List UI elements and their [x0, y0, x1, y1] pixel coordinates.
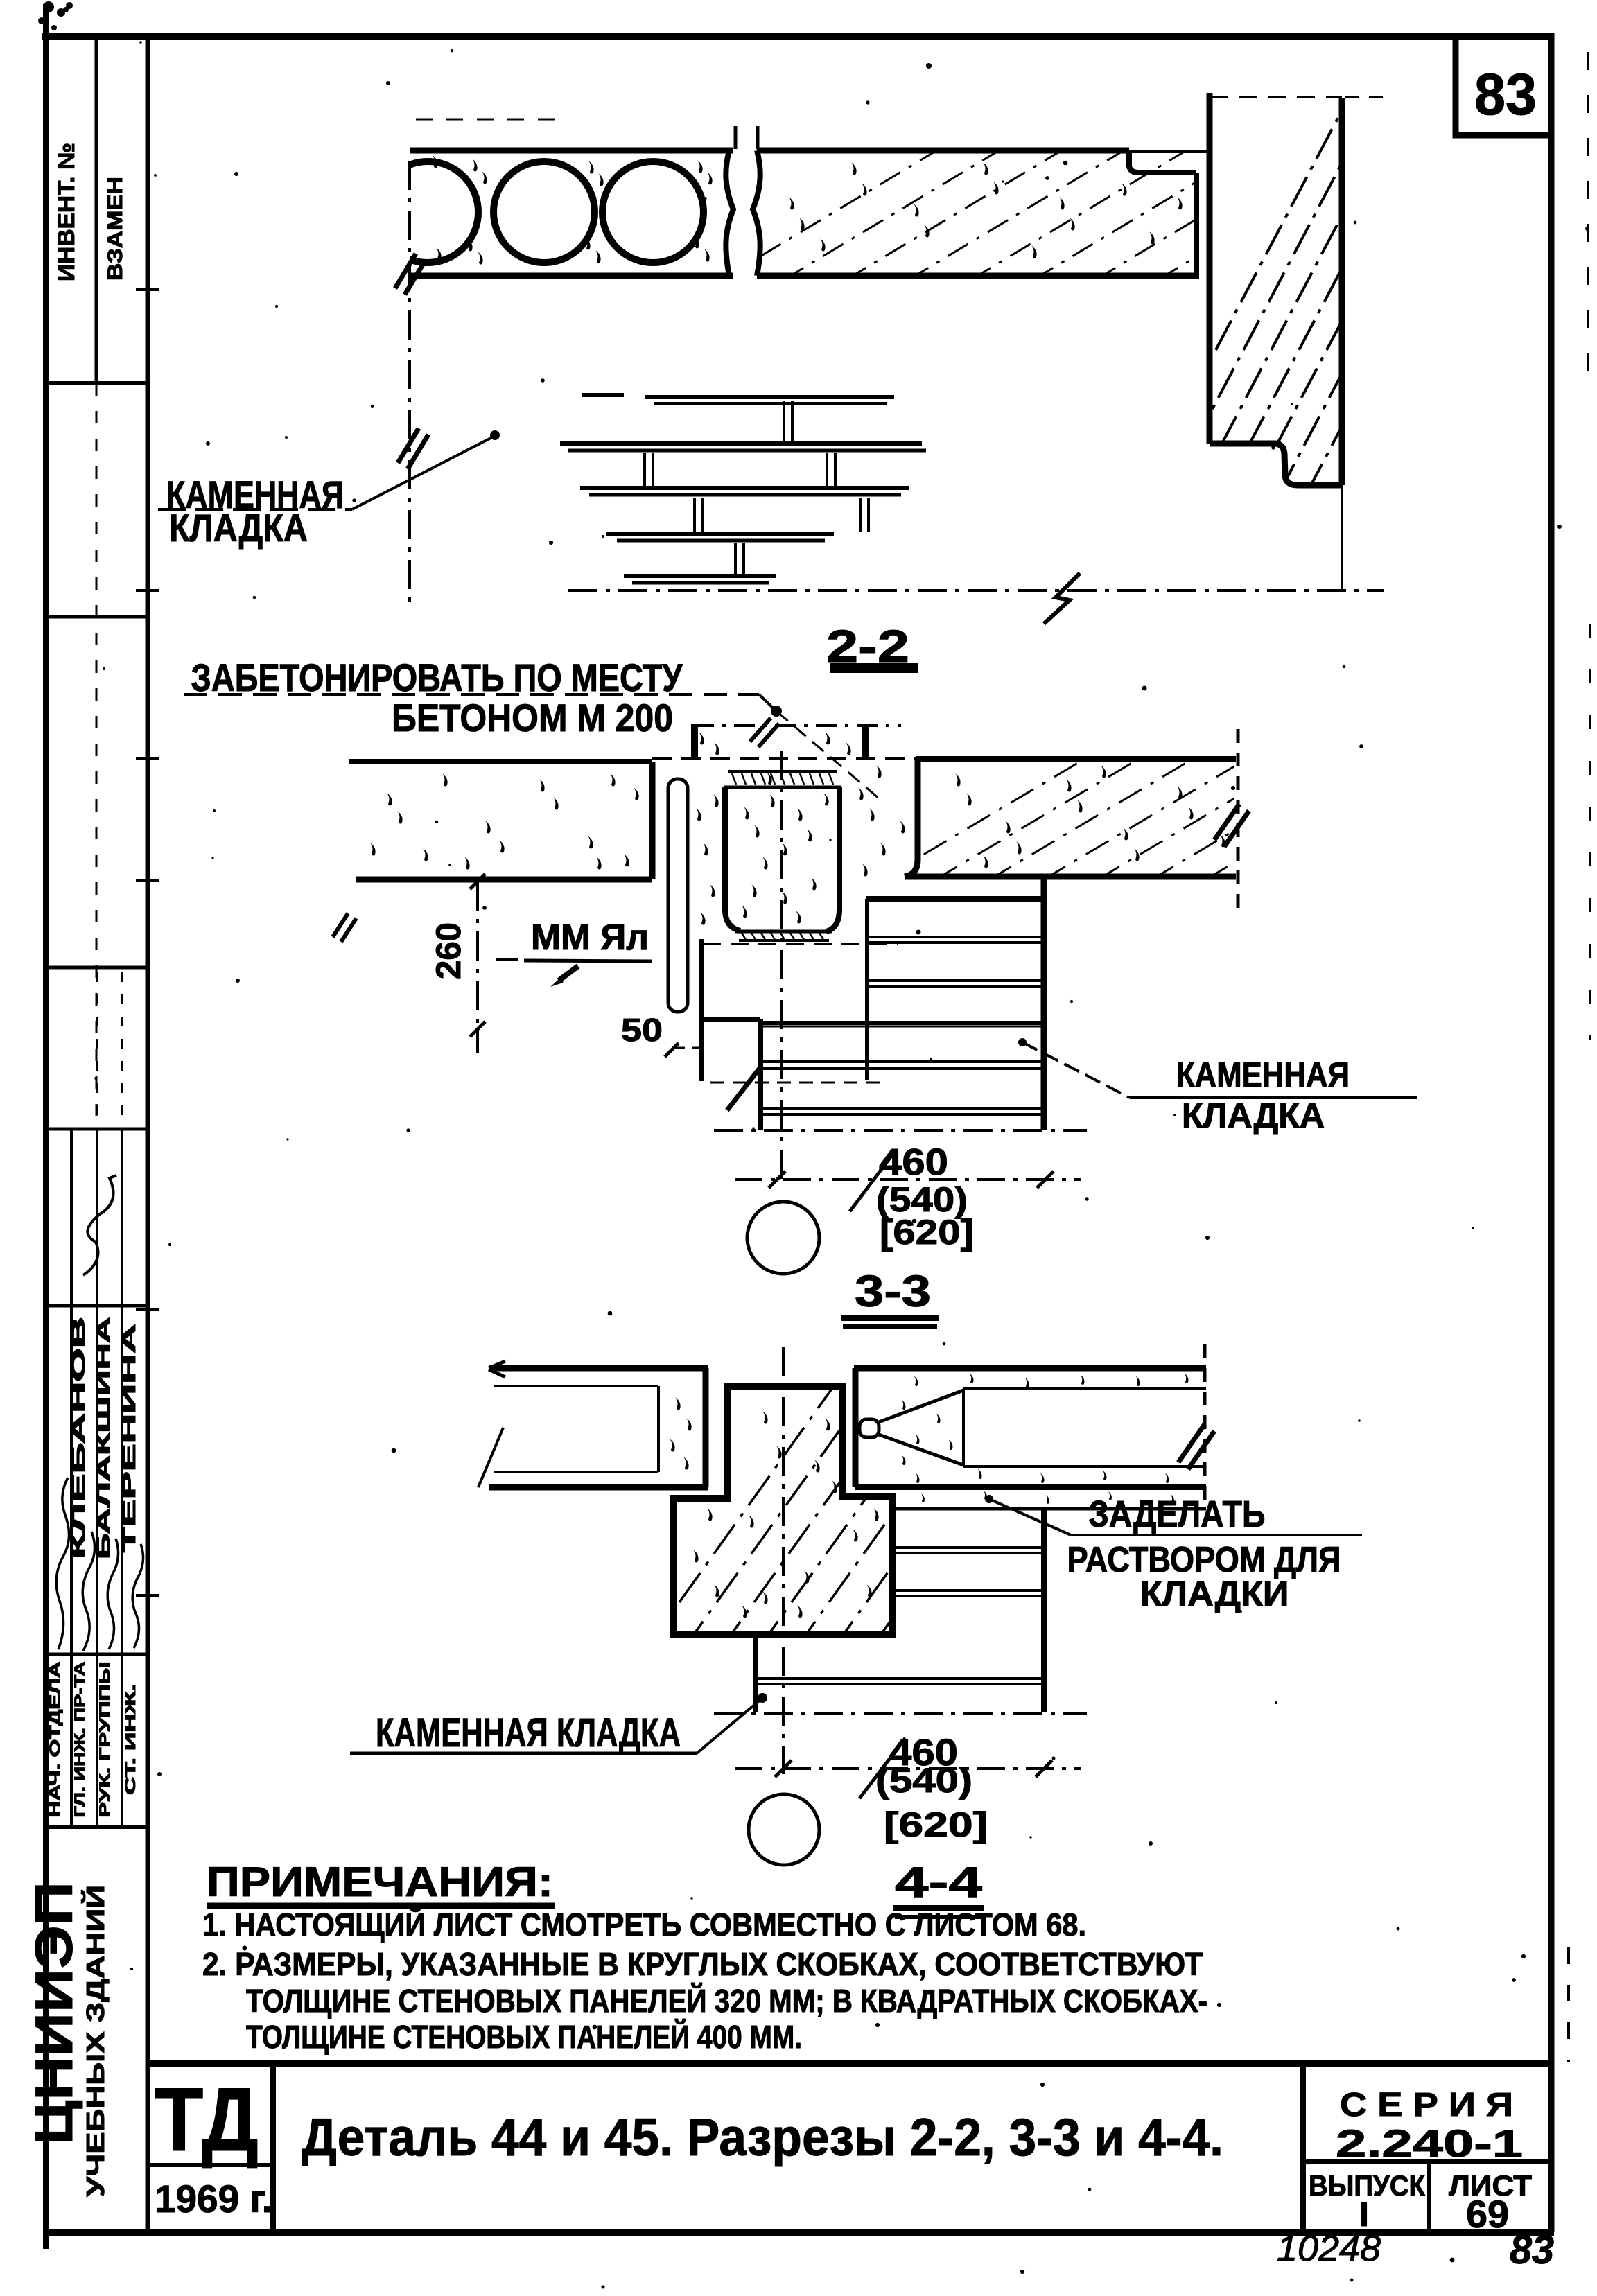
- svg-text:КАМЕННАЯ КЛАДКА: КАМЕННАЯ КЛАДКА: [376, 1710, 681, 1755]
- svg-text:83: 83: [1510, 2227, 1554, 2272]
- svg-text:2. РАЗМЕРЫ, УКАЗАННЫЕ В К: 2. РАЗМЕРЫ, УКАЗАННЫЕ В КРУГЛЫХ СКОБКАХ,…: [202, 1946, 1203, 1982]
- svg-text:ГЛ. ИНЖ. ПР-ТА: ГЛ. ИНЖ. ПР-ТА: [72, 1662, 88, 1818]
- svg-text:КЛАДКА: КЛАДКА: [169, 506, 308, 550]
- svg-text:ЦНИИЭП: ЦНИИЭП: [25, 1882, 84, 2145]
- svg-text:КЛЕБАНОВ: КЛЕБАНОВ: [68, 1317, 89, 1559]
- svg-text:3-3: 3-3: [855, 1266, 931, 1316]
- svg-text:I: I: [1359, 2195, 1369, 2234]
- svg-text:ТД: ТД: [155, 2069, 259, 2170]
- svg-text:БАЛАКШИНА: БАЛАКШИНА: [93, 1317, 114, 1559]
- svg-text:4-4: 4-4: [895, 1859, 983, 1907]
- svg-text:1. НАСТОЯЩИЙ ЛИСТ СМОТРЕТЬ: 1. НАСТОЯЩИЙ ЛИСТ СМОТРЕТЬ СОВМЕСТНО С Л…: [202, 1907, 1086, 1943]
- svg-text:[620]: [620]: [884, 1805, 988, 1844]
- svg-text:ВЗАМЕН: ВЗАМЕН: [104, 177, 127, 281]
- svg-text:ММ Ял: ММ Ял: [531, 918, 649, 958]
- svg-text:НАЧ. ОТДЕЛА: НАЧ. ОТДЕЛА: [47, 1662, 63, 1818]
- svg-text:Деталь 44 и 45. Разрезы 2-2,: Деталь 44 и 45. Разрезы 2-2, 3-3 и 4-4.: [302, 2108, 1223, 2167]
- svg-text:83: 83: [1474, 62, 1537, 127]
- svg-text:БЕТОНОМ М 200: БЕТОНОМ М 200: [392, 696, 673, 739]
- svg-text:ТОЛЩИНЕ СТЕНОВЫХ ПАНЕЛЕЙ: ТОЛЩИНЕ СТЕНОВЫХ ПАНЕЛЕЙ 400 ММ.: [246, 2019, 802, 2055]
- svg-text:2.240-1: 2.240-1: [1336, 2121, 1523, 2165]
- svg-text:С Е Р И Я: С Е Р И Я: [1340, 2087, 1513, 2123]
- svg-text:50: 50: [621, 1012, 663, 1048]
- svg-text:ПРИМЕЧАНИЯ:: ПРИМЕЧАНИЯ:: [207, 1859, 553, 1905]
- svg-text:УЧЕБНЫХ ЗДАНИЙ: УЧЕБНЫХ ЗДАНИЙ: [80, 1885, 110, 2197]
- svg-text:КЛАДКИ: КЛАДКИ: [1140, 1575, 1289, 1613]
- svg-text:РУК. ГРУППЫ: РУК. ГРУППЫ: [97, 1662, 113, 1818]
- svg-text:ТЕРЕНИНА: ТЕРЕНИНА: [119, 1324, 139, 1552]
- svg-text:ЗАДЕЛАТЬ: ЗАДЕЛАТЬ: [1089, 1493, 1266, 1535]
- svg-text:КАМЕННАЯ: КАМЕННАЯ: [1176, 1055, 1350, 1094]
- svg-text:СТ. ИНЖ.: СТ. ИНЖ.: [123, 1684, 139, 1795]
- svg-text:КЛАДКА: КЛАДКА: [1182, 1096, 1325, 1135]
- svg-text:10248: 10248: [1277, 2229, 1381, 2269]
- svg-text:1969 г.: 1969 г.: [155, 2177, 272, 2220]
- svg-text:[620]: [620]: [880, 1213, 974, 1252]
- svg-text:ИНВЕНТ. №: ИНВЕНТ. №: [53, 143, 80, 281]
- svg-text:460: 460: [879, 1141, 948, 1183]
- svg-text:ТОЛЩИНЕ СТЕНОВЫХ ПАНЕЛЕЙ: ТОЛЩИНЕ СТЕНОВЫХ ПАНЕЛЕЙ 320 ММ; В КВАДР…: [246, 1983, 1207, 2019]
- svg-text:(540): (540): [875, 1761, 972, 1800]
- svg-text:260: 260: [429, 922, 468, 979]
- svg-text:ЗАБЕТОНИРОВАТЬ ПО МЕСТУ: ЗАБЕТОНИРОВАТЬ ПО МЕСТУ: [191, 656, 683, 699]
